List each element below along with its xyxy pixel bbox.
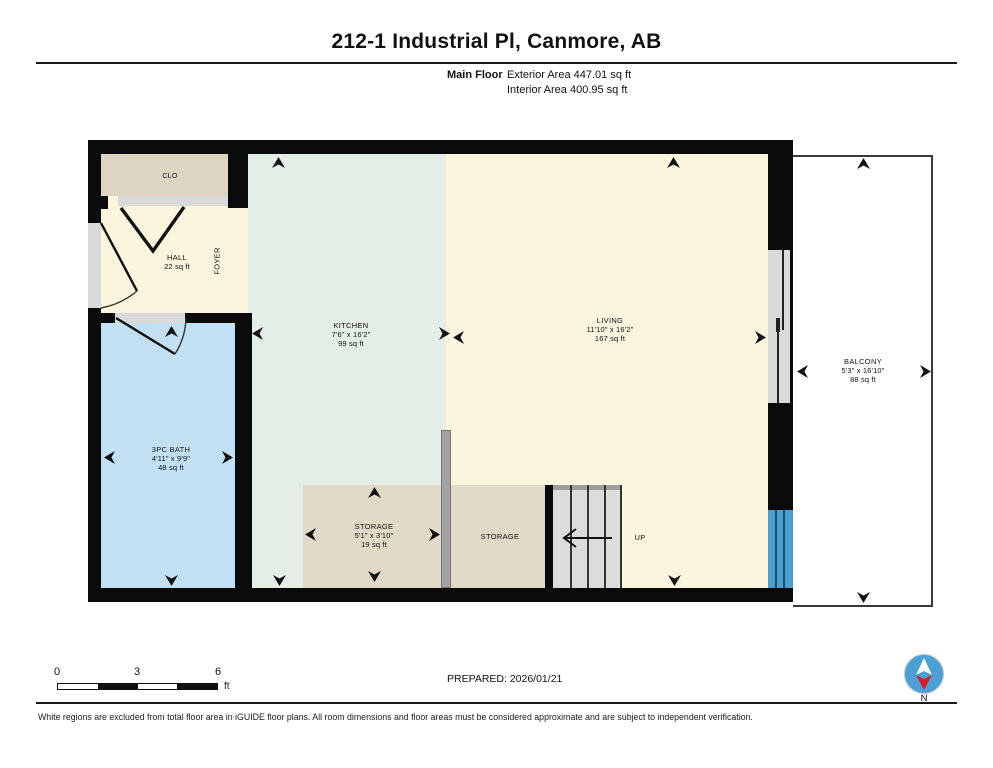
- window-mullion: [783, 510, 785, 588]
- storage2-label: STORAGE: [481, 532, 520, 541]
- hall-label: HALL 22 sq ft: [164, 253, 190, 271]
- compass-icon: [904, 654, 944, 694]
- scale-tick-3: 3: [134, 666, 140, 678]
- footer-divider: [36, 702, 957, 704]
- wall-stairs-left: [545, 485, 553, 602]
- sliding-door-overlap: [776, 318, 780, 332]
- sliding-door-panel: [782, 250, 784, 330]
- bath-label: 3PC BATH 4'11" x 9'9" 48 sq ft: [152, 445, 191, 473]
- prepared-date: PREPARED: 2026/01/21: [447, 673, 562, 685]
- page-title: 212-1 Industrial Pl, Canmore, AB: [0, 30, 993, 54]
- storage1-label: STORAGE 5'1" x 3'10" 19 sq ft: [355, 522, 394, 550]
- stairs-up-label: UP: [634, 533, 645, 542]
- sliding-door: [768, 250, 790, 403]
- stair-step-line: [604, 485, 606, 588]
- scale-bar-segment: [98, 684, 138, 689]
- exterior-area: Exterior Area 447.01 sq ft: [507, 69, 631, 81]
- storage1-dims: 5'1" x 3'10": [355, 531, 394, 540]
- wall-bath-right: [235, 313, 252, 602]
- kitchen-area: 99 sq ft: [332, 339, 371, 348]
- scale-unit: ft: [224, 681, 230, 692]
- bath-door-opening: [115, 313, 185, 323]
- foyer-label: FOYER: [212, 247, 221, 274]
- closet-label: CLO: [162, 172, 177, 181]
- scale-bar: [57, 683, 218, 690]
- wall-closet-right: [228, 140, 248, 208]
- up-text: UP: [634, 533, 645, 542]
- balcony-label: BALCONY 5'3" x 16'10" 88 sq ft: [841, 357, 884, 385]
- scale-bar-segment: [177, 684, 217, 689]
- window: [768, 510, 793, 588]
- closet-opening: [118, 196, 228, 206]
- floor-label: Main Floor: [447, 69, 503, 81]
- living-area: 167 sq ft: [587, 334, 634, 343]
- stairs: [553, 485, 622, 588]
- wall-left: [88, 140, 101, 602]
- bath-area: 48 sq ft: [152, 463, 191, 472]
- balcony-area: 88 sq ft: [841, 375, 884, 384]
- stair-step-line: [570, 485, 572, 588]
- window-mullion: [775, 510, 777, 588]
- entry-door-opening: [88, 223, 101, 308]
- interior-area: Interior Area 400.95 sq ft: [507, 84, 627, 96]
- closet-name: CLO: [162, 172, 177, 181]
- storage-divider-wall: [441, 430, 451, 588]
- compass-needle-icon: [905, 655, 943, 693]
- balcony-name: BALCONY: [841, 357, 884, 366]
- storage1-area: 19 sq ft: [355, 540, 394, 549]
- storage2-name: STORAGE: [481, 532, 520, 541]
- living-name: LIVING: [587, 316, 634, 325]
- kitchen-name: KITCHEN: [332, 321, 371, 330]
- living-label: LIVING 11'10" x 16'2" 167 sq ft: [587, 316, 634, 344]
- bath-name: 3PC BATH: [152, 445, 191, 454]
- hall-area: 22 sq ft: [164, 262, 190, 271]
- foyer-name: FOYER: [212, 247, 221, 274]
- kitchen-label: KITCHEN 7'6" x 16'2" 99 sq ft: [332, 321, 371, 349]
- wall-top: [88, 140, 793, 154]
- stairs-right-edge: [620, 485, 622, 588]
- living-dims: 11'10" x 16'2": [587, 325, 634, 334]
- kitchen-dims: 7'6" x 16'2": [332, 330, 371, 339]
- scale-tick-0: 0: [54, 666, 60, 678]
- wall-closet-stub: [88, 196, 108, 209]
- disclaimer-text: White regions are excluded from total fl…: [38, 712, 968, 722]
- balcony-dims: 5'3" x 16'10": [841, 366, 884, 375]
- scale-tick-6: 6: [215, 666, 221, 678]
- floor-plan-page: 212-1 Industrial Pl, Canmore, AB Main Fl…: [0, 0, 993, 768]
- stair-step-line: [587, 485, 589, 588]
- hall-name: HALL: [164, 253, 190, 262]
- sliding-door-panel: [777, 327, 779, 403]
- storage1-name: STORAGE: [355, 522, 394, 531]
- header-divider: [36, 62, 957, 64]
- wall-bottom: [88, 588, 793, 602]
- bath-dims: 4'11" x 9'9": [152, 454, 191, 463]
